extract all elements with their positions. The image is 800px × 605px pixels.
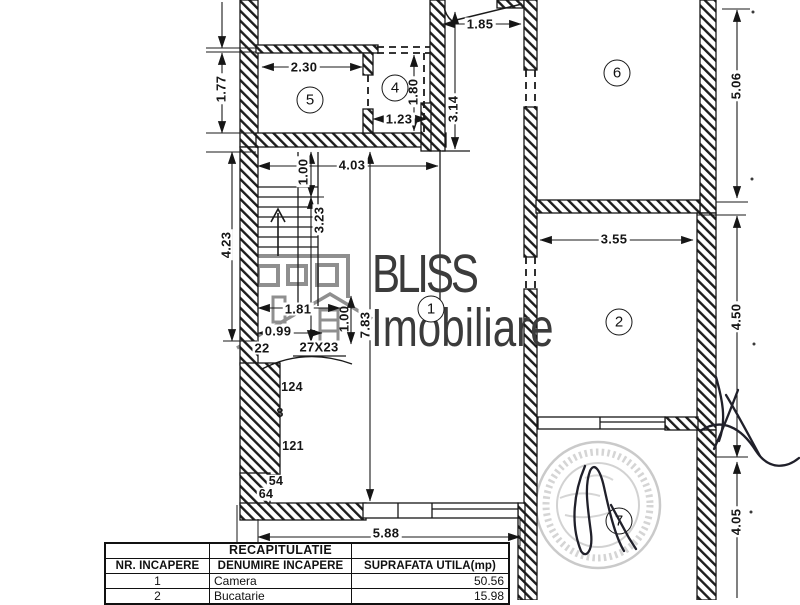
col-header-area: SUPRAFATA UTILA(mp) [352,559,510,574]
room-number-7: 7 [606,508,633,535]
dimension-label-506: 5.06 [730,71,743,102]
dimension-label-100b: 1.00 [338,306,351,333]
window [363,503,518,518]
room-number-2: 2 [606,309,633,336]
wall-segment [497,0,524,8]
wall-segment [256,133,446,147]
cell-name: Camera [210,574,352,589]
stair-up-arrow-head [271,209,285,222]
table-row: 2 Bucatarie 15.98 [105,589,509,605]
cell-name: Bucatarie [210,589,352,605]
wall-segment [536,200,700,213]
wall-segment [240,503,366,520]
room-number-4: 4 [382,75,409,102]
wall-segment [524,0,537,70]
wall-segment [421,103,431,151]
level-mark-64: 64 [257,488,276,501]
floor-plan-scan: BLISS Imobiliare 2.30 1.77 1.23 1.80 3.1… [0,0,800,600]
stamp-seal [536,442,660,568]
recap-table: RECAPITULATIE NR. INCAPERE DENUMIRE INCA… [104,542,510,605]
dimension-label-450: 4.50 [730,302,743,333]
wall-segment [697,213,716,430]
wall-segment [665,417,698,430]
corner-scribble [726,395,760,456]
wall-segment [240,363,280,475]
corner-scribble [714,390,738,449]
room-number-1: 1 [418,296,445,323]
corner-scribble [716,377,723,441]
dimension-label-783: 7.83 [359,310,372,341]
col-header-nr: NR. INCAPERE [105,559,210,574]
dimension-label-314: 3.14 [447,94,460,125]
understair-door-arc [262,357,352,369]
recap-title: RECAPITULATIE [210,543,352,559]
recap-empty-cell [105,543,210,559]
level-mark-121: 121 [282,440,304,453]
wall-segment [524,107,537,257]
level-mark-54: 54 [267,475,286,488]
wall-segment [430,0,445,151]
recap-empty-cell [352,543,510,559]
dimension-label-588: 5.88 [371,527,402,540]
stair-tread-label: 27X23 [297,341,340,354]
wall-segment [363,53,373,75]
watermark-imobiliare: Imobiliare [371,301,554,355]
window [538,417,665,429]
level-mark-124: 124 [281,381,303,394]
wall-segment [363,109,373,133]
dimension-label-405: 4.05 [730,507,743,538]
wall-segment [518,503,525,600]
room-number-5: 5 [297,87,324,114]
level-mark-8: 8 [276,407,283,420]
cell-area: 50.56 [352,574,510,589]
dimension-label-230: 2.30 [289,61,320,74]
wall-segment [240,0,258,147]
cell-nr: 2 [105,589,210,605]
stair-mark-22: 22 [252,342,271,355]
corner-scribble [700,425,799,466]
dimension-label-403: 4.03 [337,159,368,172]
scan-noise [750,11,756,514]
dimension-label-123: 1.23 [384,113,415,126]
dimension-label-181: 1.81 [283,303,314,316]
wall-segment [697,430,716,600]
extension-lines [206,9,750,560]
table-row: 1 Camera 50.56 [105,574,509,589]
dimension-label-323: 3.23 [313,205,326,236]
cell-area: 15.98 [352,589,510,605]
dimension-label-100a: 1.00 [297,157,310,188]
dimension-label-177: 1.77 [215,74,228,105]
wall-segment [240,147,258,365]
dimension-label-185: 1.85 [465,18,496,31]
dimension-label-423: 4.23 [220,230,233,261]
dimension-label-099: 0.99 [263,325,294,338]
wall-segment [700,0,716,213]
dimension-label-355: 3.55 [599,233,630,246]
window-bands [363,417,665,518]
room-number-6: 6 [604,60,631,87]
dimension-label-180: 1.80 [407,77,420,108]
col-header-name: DENUMIRE INCAPERE [210,559,352,574]
watermark-bliss: BLISS [372,247,476,301]
wall-segment [256,45,378,53]
cell-nr: 1 [105,574,210,589]
